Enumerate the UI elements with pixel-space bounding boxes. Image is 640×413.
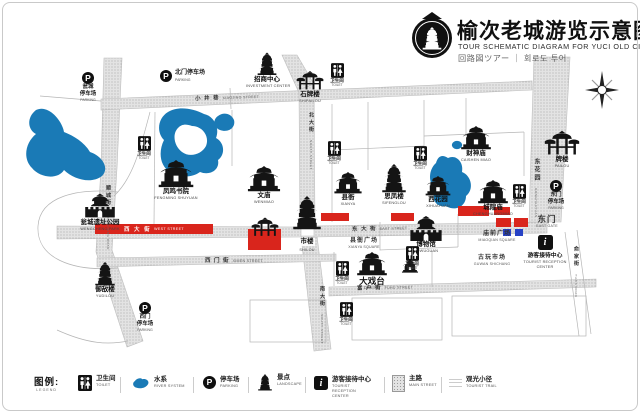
pavilion-icon	[257, 374, 273, 391]
temple-icon	[156, 160, 196, 188]
gate-icon	[407, 216, 445, 241]
water-icon	[131, 376, 150, 390]
parking-beimen: P 北门停车场 PARKING	[160, 70, 205, 82]
temple-icon	[332, 172, 364, 194]
parking-icon: P	[160, 70, 172, 82]
toilet: 卫生间 TOILET	[405, 146, 435, 170]
street-label-en: WEST STREET	[154, 227, 184, 231]
toilet-icon	[328, 141, 341, 156]
page-subtitle: TOUR SCHEMATIC DIAGRAM FOR YUCI OLD CITY	[458, 42, 640, 51]
legend-divider	[441, 377, 442, 393]
area-guwan-market: 古玩市场 GUWAN SHICHANG	[470, 255, 514, 267]
parking-ximen: P 西门 停车场 PARKING	[128, 302, 162, 333]
tower-icon	[380, 164, 408, 193]
parking-icon: P	[203, 376, 216, 389]
legend-item-main-street: 主路 MAIN STREET	[392, 375, 437, 392]
water-pond-small	[214, 114, 234, 131]
legend-divider	[193, 377, 194, 393]
temple-icon	[423, 176, 453, 196]
legend-item-scenic: 景点 LANDSCAPE	[257, 374, 302, 391]
legend-item-parking: P 停车场 PARKING	[203, 376, 240, 389]
trail-swatch	[449, 379, 462, 389]
area-xianya-square: 县衙广场 XIANYA SQUARE	[342, 238, 386, 250]
parking-dongmen: P 东门 停车场 PARKING	[540, 180, 572, 211]
poi-shilou: 市楼 SHILOU	[284, 196, 330, 253]
toilet: 卫生间 TOILET	[327, 261, 357, 285]
legend-item-reception: i 游客接待中心 TOURIST RECEPTION CENTER	[314, 376, 374, 399]
toilet-icon	[331, 63, 344, 78]
street-label-zh: 西 大 街	[124, 225, 151, 233]
street-label-north: 北大街 NORTH STREET	[302, 112, 320, 170]
route-marker	[496, 218, 511, 227]
street-label-east: 东 大 街 EAST STREET	[352, 223, 408, 232]
poi-wengcheng-park: 瓮城遗址公园 WENGCHENG PARK	[74, 192, 126, 232]
poi-xianya: 县衙 XIANYA	[330, 172, 366, 207]
tower-icon	[93, 262, 117, 286]
toilet-icon	[406, 246, 419, 261]
parking-wengcheng: P 瓮城 停车场 PARKING	[72, 72, 104, 103]
legend-item-trail: 观光小径 TOURIST TRAIL	[449, 376, 497, 389]
archway-icon	[296, 70, 324, 91]
toilet-icon	[340, 302, 353, 317]
archway-icon	[544, 130, 580, 156]
street-label-south: 南大街 SOUTH STREET	[313, 286, 331, 344]
poi-wenmiao: 文庙 WENMIAO	[242, 166, 286, 205]
water-west-lake	[26, 109, 105, 181]
poi-investment-center: 招商中心 INVESTMENT CENTER	[246, 52, 288, 89]
toilet: 卫生间 TOILET	[319, 141, 349, 165]
gate-icon	[83, 192, 117, 219]
legend-divider	[248, 377, 249, 393]
yuci-old-city-map: 西 大 街 WEST STREET 小 井 巷 XIAOJING STREET …	[0, 0, 640, 413]
parking-icon: P	[82, 72, 94, 84]
legend-divider	[305, 377, 306, 393]
parking-icon: P	[550, 180, 562, 192]
legend-divider	[120, 377, 121, 393]
info-icon: i	[314, 376, 328, 390]
compass-icon	[584, 70, 620, 116]
toilet-icon	[78, 375, 92, 391]
page-title: 榆次老城游览示意图	[457, 15, 640, 45]
gate-arch-icon	[251, 216, 279, 243]
city-emblem-logo	[410, 12, 454, 60]
main-street-swatch	[392, 375, 405, 392]
legend-item-water: 水系 RIVER SYSTEM	[131, 376, 185, 390]
tower-icon	[256, 52, 278, 76]
toilet: 卫生间 TOILET	[331, 302, 361, 326]
poi-xihuayuan: 西花园 XIHUAYUAN	[419, 176, 457, 209]
legend-item-toilet: 卫生间 TOILET	[78, 375, 116, 391]
toilet: 卫生间 TOILET	[397, 246, 427, 270]
toilet: 卫生间 TOILET	[322, 63, 352, 87]
toilet: 卫生间 TOILET	[129, 136, 159, 160]
toilet-icon	[138, 136, 151, 151]
temple-icon	[244, 166, 284, 192]
info-icon: i	[538, 235, 553, 250]
tower-icon	[289, 196, 325, 230]
toilet-icon	[414, 146, 427, 161]
poi-yudilou: 御敌楼 YUDILOU	[88, 262, 122, 299]
area-miaoqian-square: 庙前广场 MIAOQIAN SQUARE	[474, 231, 520, 243]
legend-heading: 图例: LEGEND	[34, 374, 59, 392]
temple-icon	[458, 126, 494, 150]
route-marker	[514, 218, 528, 227]
street-label-ximen: 西 门 街 XIMEN STREET	[205, 256, 263, 264]
tourist-reception-center: i 游客接待中心 TOURIST RECEPTION CENTER	[522, 235, 568, 269]
poi-pailou: 牌楼 PAILOU	[542, 130, 582, 169]
parking-icon: P	[139, 302, 151, 314]
poi-caishenmiao: 财神庙 CAISHEN MIAO	[455, 126, 497, 163]
toilet: 卫生间 TOILET	[504, 184, 534, 208]
street-label-yujia: 俞家街 YUJIA ROAD	[567, 246, 585, 297]
toilet-icon	[336, 261, 349, 276]
toilet-icon	[513, 184, 526, 199]
page-subtitle-translit: 回路図ツアー ｜ 회로도 투어	[458, 52, 567, 64]
poi-fengming-shuyuan: 凤鸣书院 FENGMING SHUYUAN	[152, 160, 200, 201]
legend-divider	[384, 377, 385, 393]
